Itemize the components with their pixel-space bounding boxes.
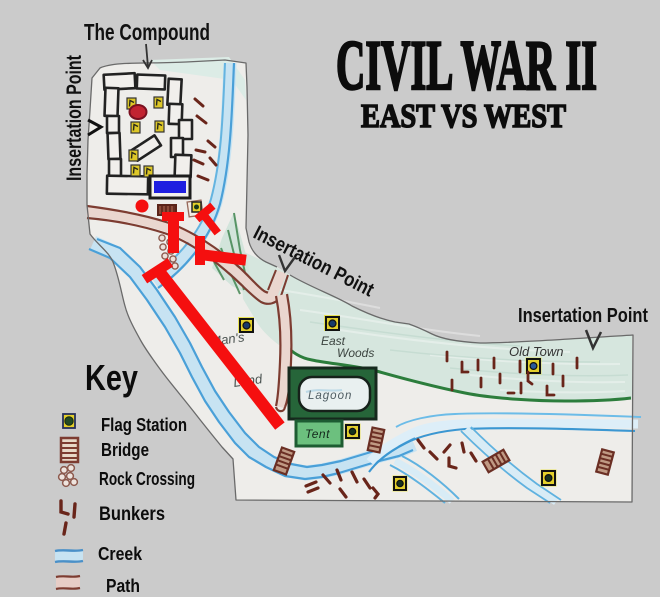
svg-text:CIVIL WAR II: CIVIL WAR II	[336, 27, 597, 105]
svg-text:Old Town: Old Town	[509, 344, 563, 359]
svg-text:Key: Key	[85, 357, 138, 398]
svg-text:Rock Crossing: Rock Crossing	[99, 469, 195, 489]
svg-text:Creek: Creek	[98, 544, 143, 564]
svg-text:Insertation Point: Insertation Point	[518, 305, 648, 327]
svg-text:Insertation Point: Insertation Point	[63, 55, 86, 181]
svg-text:Tent: Tent	[305, 427, 330, 441]
svg-text:Bridge: Bridge	[101, 440, 149, 460]
svg-text:Path: Path	[106, 576, 140, 596]
svg-text:The Compound: The Compound	[84, 19, 210, 45]
svg-text:Bunkers: Bunkers	[99, 504, 165, 525]
svg-text:EAST VS WEST: EAST VS WEST	[361, 98, 566, 135]
svg-text:Flag Station: Flag Station	[101, 415, 187, 435]
svg-text:Lagoon: Lagoon	[308, 390, 352, 402]
svg-text:Woods: Woods	[337, 346, 374, 360]
